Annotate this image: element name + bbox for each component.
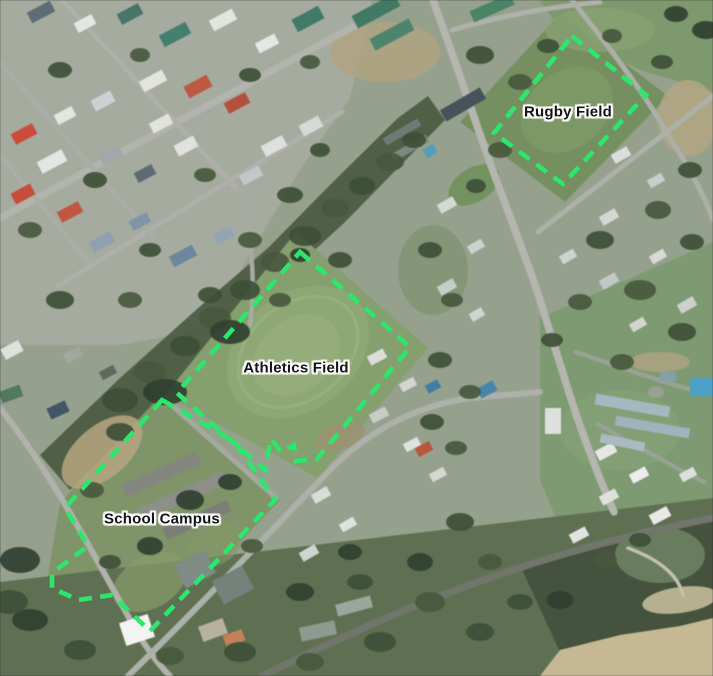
map-canvas[interactable]: Rugby FieldAthletics FieldSchool Campus <box>0 0 713 676</box>
vector-overlay <box>0 0 713 676</box>
polygon-athletics-field <box>177 252 410 470</box>
polygon-school-campus <box>52 400 275 631</box>
polygon-rugby-field <box>494 36 646 184</box>
